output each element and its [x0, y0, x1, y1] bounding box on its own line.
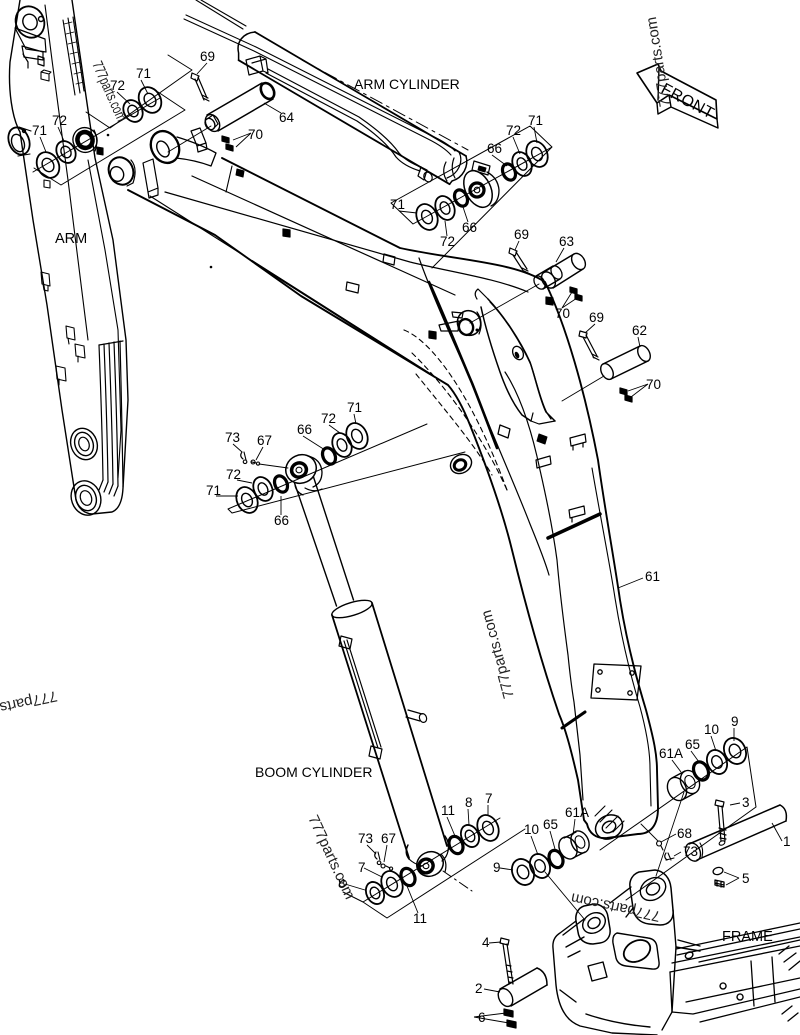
- svg-text:73: 73: [225, 430, 240, 445]
- svg-text:9: 9: [493, 860, 501, 875]
- svg-text:FRAME: FRAME: [722, 929, 773, 945]
- svg-text:72: 72: [52, 113, 67, 128]
- svg-text:5: 5: [742, 871, 750, 886]
- svg-text:BOOM CYLINDER: BOOM CYLINDER: [255, 764, 372, 780]
- svg-text:11: 11: [441, 803, 455, 818]
- svg-text:777parts: 777parts: [0, 687, 59, 716]
- svg-text:70: 70: [248, 127, 263, 142]
- svg-text:777parts.com: 777parts.com: [304, 813, 358, 903]
- svg-text:67: 67: [381, 831, 396, 846]
- svg-text:ARM: ARM: [55, 231, 87, 247]
- svg-text:70: 70: [646, 377, 661, 392]
- svg-text:63: 63: [559, 234, 574, 249]
- svg-text:66: 66: [274, 513, 289, 528]
- svg-text:8: 8: [465, 795, 473, 810]
- svg-text:2: 2: [475, 981, 483, 996]
- svg-text:69: 69: [514, 227, 529, 242]
- svg-text:72: 72: [226, 467, 241, 482]
- svg-text:8: 8: [338, 876, 346, 891]
- svg-text:11: 11: [413, 911, 427, 926]
- svg-text:777parts.com: 777parts.com: [643, 16, 674, 108]
- svg-text:66: 66: [462, 220, 477, 235]
- svg-text:72: 72: [321, 411, 336, 426]
- svg-text:61: 61: [645, 569, 660, 584]
- svg-text:65: 65: [543, 817, 558, 832]
- svg-text:72: 72: [506, 123, 521, 138]
- svg-text:66: 66: [297, 422, 312, 437]
- svg-text:67: 67: [257, 433, 272, 448]
- svg-text:71: 71: [347, 400, 362, 415]
- svg-text:71: 71: [32, 123, 47, 138]
- svg-text:68: 68: [677, 826, 692, 841]
- svg-text:66: 66: [487, 141, 502, 156]
- svg-text:10: 10: [704, 722, 719, 737]
- svg-text:4: 4: [482, 935, 490, 950]
- svg-text:69: 69: [200, 49, 215, 64]
- svg-text:777parts.com: 777parts.com: [478, 608, 518, 700]
- svg-text:71: 71: [528, 113, 543, 128]
- svg-text:72: 72: [440, 234, 455, 249]
- svg-text:9: 9: [731, 714, 739, 729]
- svg-text:65: 65: [685, 737, 700, 752]
- svg-text:71: 71: [136, 66, 151, 81]
- svg-text:73: 73: [683, 844, 698, 859]
- svg-text:70: 70: [555, 306, 570, 321]
- svg-text:64: 64: [279, 110, 295, 125]
- svg-text:61A: 61A: [659, 746, 683, 761]
- svg-text:69: 69: [589, 310, 604, 325]
- svg-text:71: 71: [390, 197, 405, 212]
- svg-text:72: 72: [110, 78, 125, 93]
- svg-text:73: 73: [358, 831, 373, 846]
- svg-text:3: 3: [742, 795, 750, 810]
- svg-text:1: 1: [783, 834, 791, 849]
- svg-text:62: 62: [632, 323, 647, 338]
- svg-text:61A: 61A: [565, 805, 589, 820]
- svg-text:7: 7: [358, 860, 366, 875]
- svg-text:7: 7: [485, 791, 493, 806]
- svg-text:ARM CYLINDER: ARM CYLINDER: [354, 76, 460, 92]
- svg-text:10: 10: [524, 822, 539, 837]
